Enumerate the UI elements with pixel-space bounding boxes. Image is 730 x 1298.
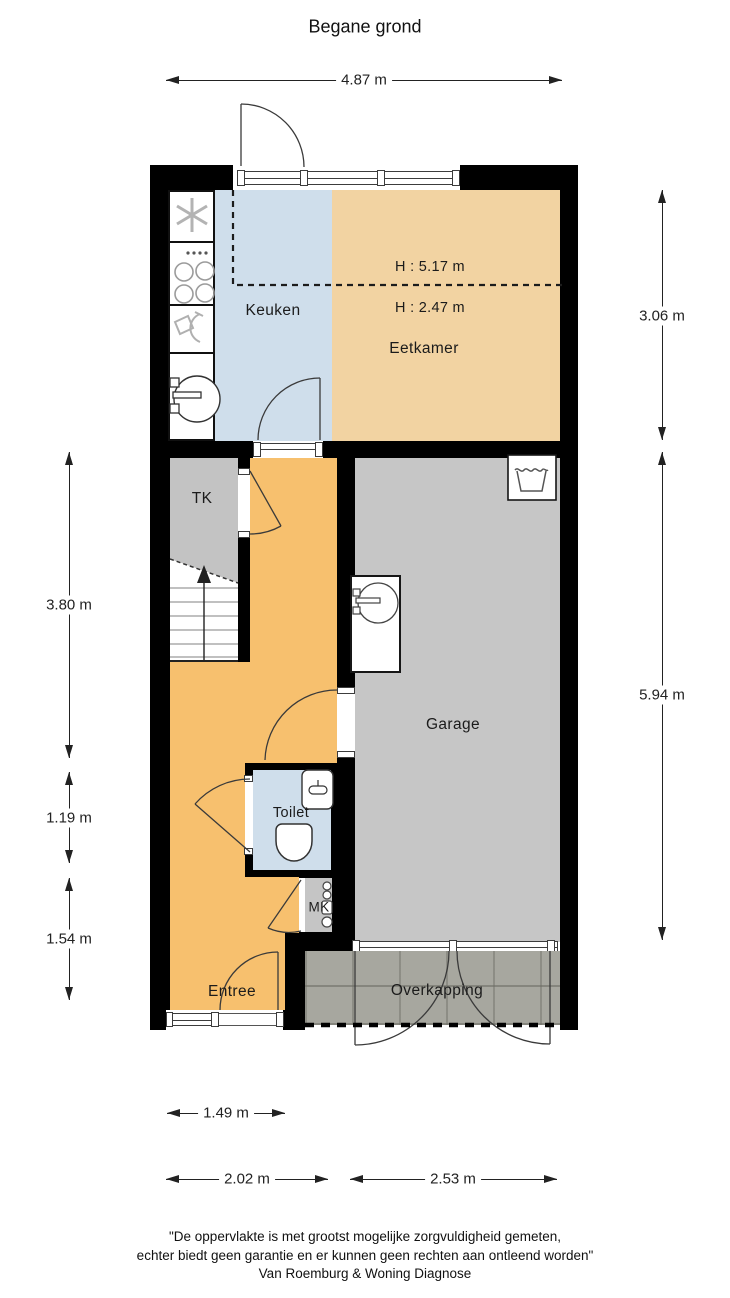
wall-middle (150, 441, 578, 458)
door-post (315, 442, 323, 457)
window-post (211, 1012, 219, 1027)
dimension-bottom-small-label: 1.49 m (198, 1104, 254, 1123)
height-label-upper: H : 5.17 m (395, 259, 465, 275)
room-label-overkapping: Overkapping (391, 982, 483, 1000)
wall-right (560, 165, 578, 1030)
dimension-left-lower-label: 1.54 m (41, 930, 97, 949)
dimension-right-lower-label: 5.94 m (634, 686, 690, 705)
dimension-bottom-left-label: 2.02 m (219, 1170, 275, 1189)
disclaimer: "De oppervlakte is met grootst mogelijke… (137, 1228, 594, 1284)
height-label-lower: H : 2.47 m (395, 300, 465, 316)
kitchen-counter-dishwasher (168, 304, 215, 354)
disclaimer-line-1: "De oppervlakte is met grootst mogelijke… (137, 1228, 594, 1247)
window-post (452, 170, 460, 186)
mk-door-frame (299, 878, 305, 932)
room-label-entree: Entree (208, 983, 256, 1001)
room-label-garage: Garage (426, 716, 480, 734)
front-door-threshold (215, 1013, 281, 1026)
kitchen-counter-extractor (168, 190, 215, 243)
window-post (300, 170, 308, 186)
room-label-toilet: Toilet (273, 805, 309, 821)
keuken-door-threshold (255, 443, 321, 450)
dimension-bottom-right-label: 2.53 m (425, 1170, 481, 1189)
window-post (166, 1012, 173, 1027)
door-post (238, 468, 250, 475)
wall-below-mk (285, 933, 352, 951)
door-post (244, 848, 253, 855)
room-label-keuken: Keuken (246, 302, 301, 320)
dimension-left-mid-label: 1.19 m (41, 809, 97, 828)
door-post (276, 1012, 284, 1027)
door-post (337, 751, 355, 758)
toilet-door-frame (245, 775, 253, 855)
kitchen-counter-stove (168, 241, 215, 306)
wall-left (150, 165, 170, 1030)
door-post (253, 442, 261, 457)
garage-door-frame (337, 687, 355, 758)
kitchen-counter-sink (168, 352, 215, 441)
dimension-top-label: 4.87 m (336, 71, 392, 90)
entree-window (168, 1013, 215, 1026)
tk-door-frame (238, 468, 250, 538)
floor-plan: Begane grond (0, 0, 730, 1298)
disclaimer-line-3: Van Roemburg & Woning Diagnose (137, 1265, 594, 1284)
room-garage (355, 458, 560, 942)
window-post (237, 170, 245, 186)
rear-door-swing (241, 104, 304, 167)
window-post (377, 170, 385, 186)
door-post (337, 687, 355, 694)
door-post (244, 775, 253, 782)
door-post (238, 531, 250, 538)
disclaimer-line-2: echter biedt geen garantie en er kunnen … (137, 1247, 594, 1266)
room-label-eetkamer: Eetkamer (389, 340, 459, 358)
dimension-right-upper-label: 3.06 m (634, 307, 690, 326)
room-label-tk: TK (192, 490, 213, 508)
rear-window (237, 171, 460, 185)
room-label-mk: MK (308, 900, 329, 915)
page-title: Begane grond (308, 17, 421, 38)
dimension-left-upper-label: 3.80 m (41, 596, 97, 615)
